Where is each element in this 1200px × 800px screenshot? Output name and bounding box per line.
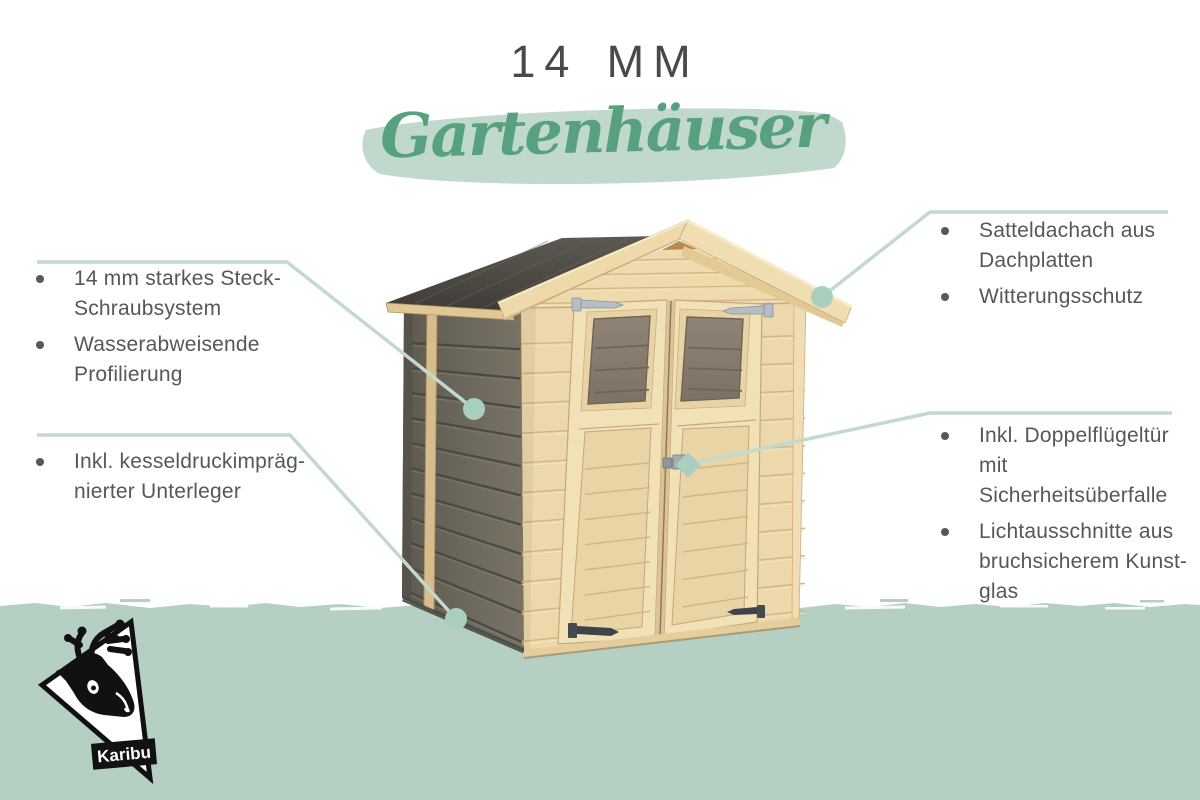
feature-line: Profilierung bbox=[74, 360, 310, 390]
shed-left-wall bbox=[402, 306, 524, 650]
infographic-canvas: 14 MM Gartenhäuser 14 mm starkes Steck- … bbox=[0, 0, 1200, 800]
subtitle-banner: Gartenhäuser bbox=[350, 94, 855, 198]
feature-list-right-bottom: Inkl. Doppelflügeltür mit Sicherheitsübe… bbox=[935, 421, 1190, 613]
feature-line: mit Sicherheitsüberfalle bbox=[979, 451, 1190, 511]
category-title: Gartenhäuser bbox=[349, 90, 856, 173]
feature-item: Inkl. kesseldruckimpräg- nierter Unterle… bbox=[30, 447, 320, 507]
feature-item: Wasserabweisende Profilierung bbox=[30, 330, 310, 390]
feature-item: Satteldachach aus Dachplatten bbox=[935, 216, 1185, 276]
feature-list-left-bottom: Inkl. kesseldruckimpräg- nierter Unterle… bbox=[30, 447, 320, 513]
feature-line: bruchsicherem Kunst- bbox=[979, 547, 1190, 577]
page-title: 14 MM bbox=[405, 36, 805, 88]
feature-item: Lichtausschnitte aus bruchsicherem Kunst… bbox=[935, 517, 1190, 607]
feature-line: nierter Unterleger bbox=[74, 477, 320, 507]
feature-item: Inkl. Doppelflügeltür mit Sicherheitsübe… bbox=[935, 421, 1190, 511]
foundation-dot-icon bbox=[445, 608, 467, 630]
karibu-logo: Karibu bbox=[28, 613, 168, 793]
feature-line: Wasserabweisende bbox=[74, 330, 310, 360]
feature-line: Dachplatten bbox=[979, 246, 1185, 276]
garden-shed-illustration bbox=[386, 220, 852, 658]
feature-line: Inkl. kesseldruckimpräg- bbox=[74, 447, 320, 477]
shed-left-door bbox=[558, 300, 667, 644]
feature-line: Lichtausschnitte aus bbox=[979, 517, 1190, 547]
feature-line: Inkl. Doppelflügeltür bbox=[979, 421, 1190, 451]
feature-item: 14 mm starkes Steck- Schraubsystem bbox=[30, 264, 310, 324]
feature-line: Witterungsschutz bbox=[979, 282, 1185, 312]
feature-line: Satteldachach aus bbox=[979, 216, 1185, 246]
left-door-lower-panel bbox=[571, 428, 651, 634]
feature-item: Witterungsschutz bbox=[935, 282, 1185, 312]
logo-label: Karibu bbox=[91, 738, 157, 769]
feature-list-right-top: Satteldachach aus Dachplatten Witterungs… bbox=[935, 216, 1185, 318]
feature-line: Schraubsystem bbox=[74, 294, 310, 324]
feature-line: 14 mm starkes Steck- bbox=[74, 264, 310, 294]
feature-line: glas bbox=[979, 577, 1190, 607]
side-wall-dot-icon bbox=[463, 398, 485, 420]
roof-edge-dot-icon bbox=[811, 286, 833, 308]
feature-list-left-top: 14 mm starkes Steck- Schraubsystem Wasse… bbox=[30, 264, 310, 396]
right-corner-trim bbox=[792, 302, 806, 619]
